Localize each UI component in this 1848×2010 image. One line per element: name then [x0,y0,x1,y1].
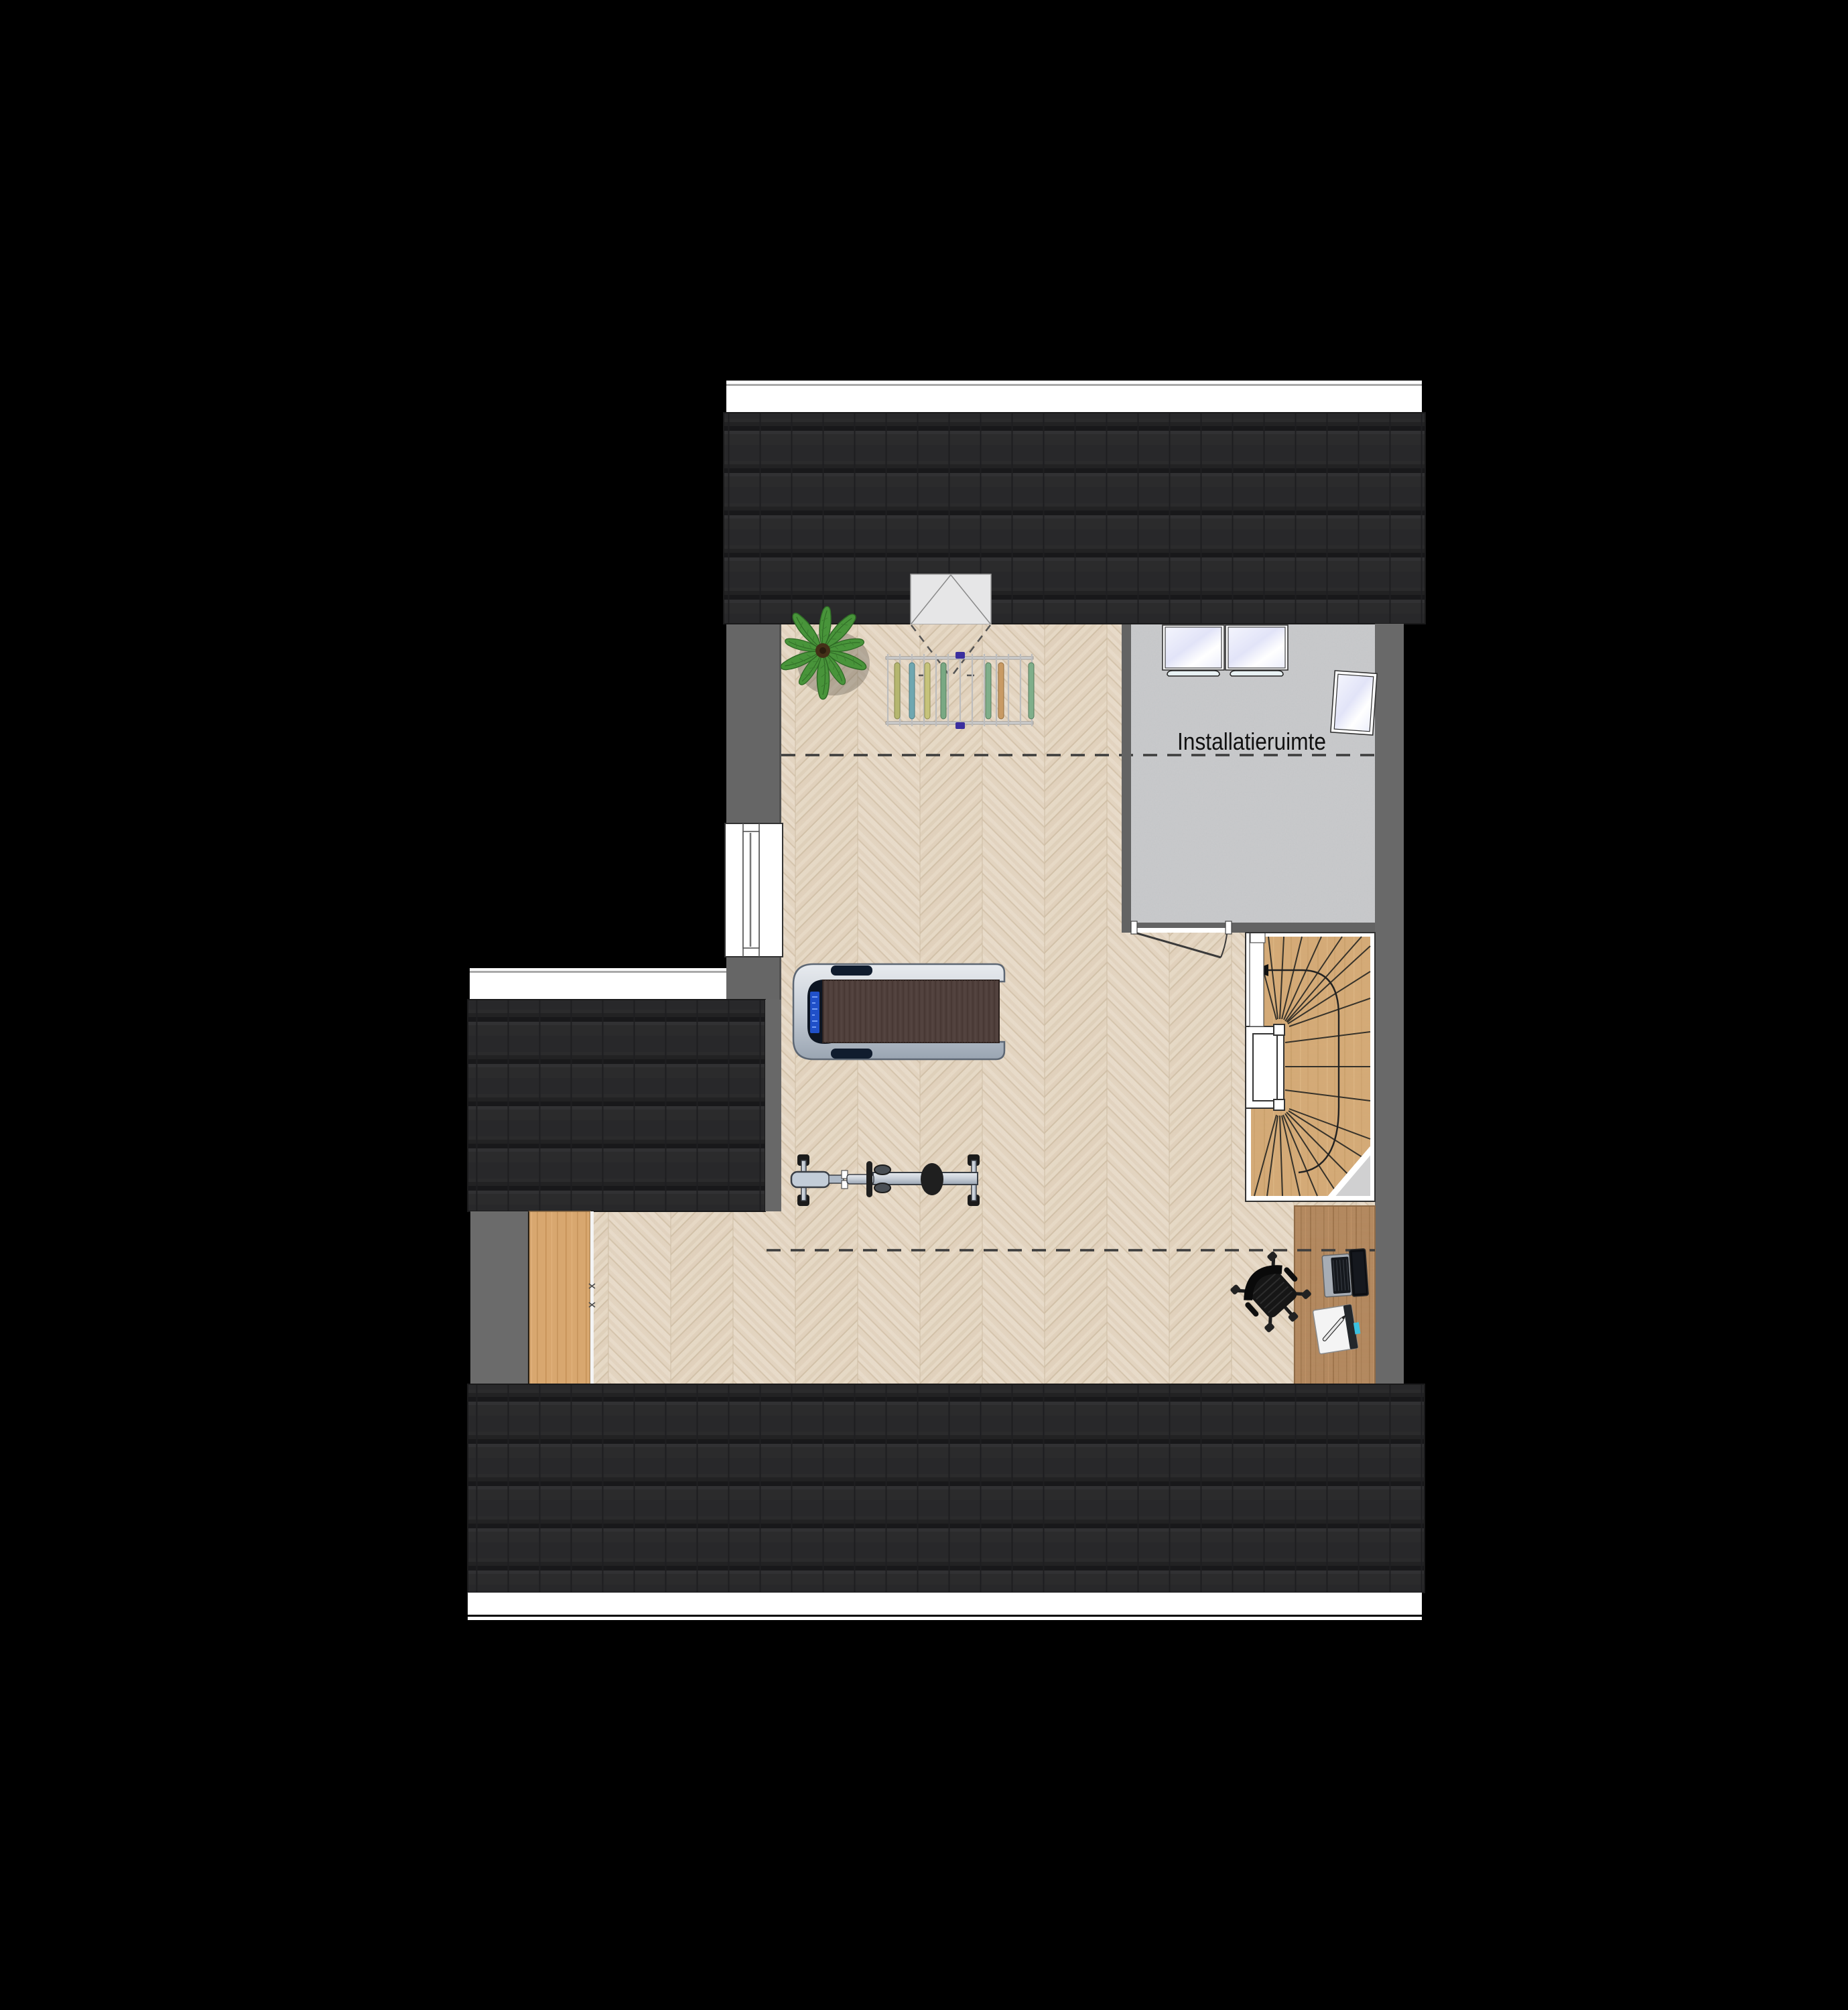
svg-text:Installatieruimte: Installatieruimte [1177,728,1326,755]
